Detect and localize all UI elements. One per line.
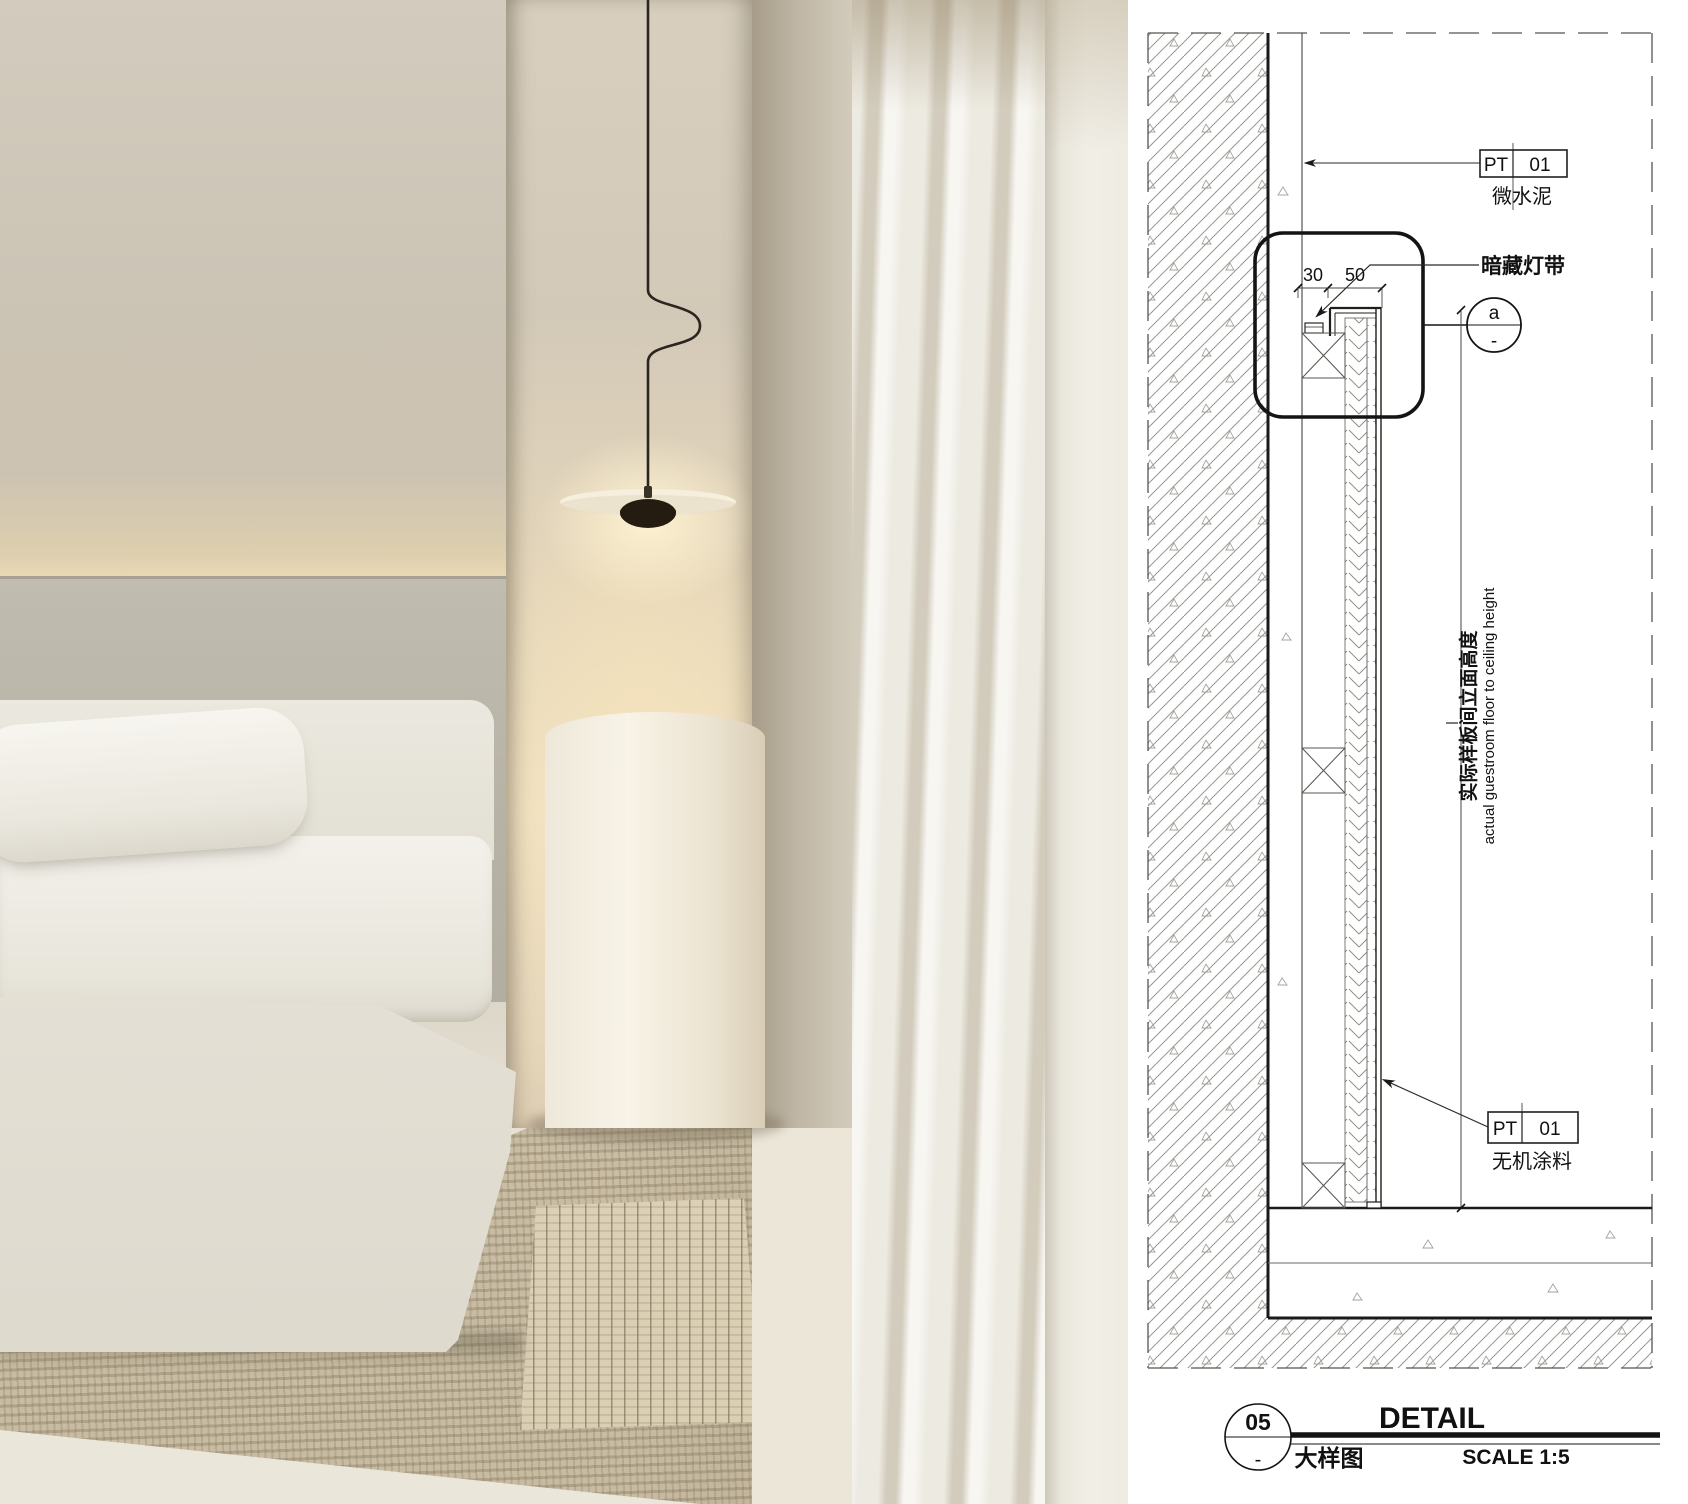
bed-pillow [0,705,310,866]
height-note-en: actual guestroom floor to ceiling height [1481,587,1498,845]
title-zh: 大样图 [1295,1445,1364,1471]
screenshot-root: 30 50 暗藏灯带 a - 实际样板间立面 [0,0,1688,1504]
marker-ref: - [1491,331,1497,352]
callout-pt01-top: PT 01 微水泥 [1306,143,1567,210]
title-block: 05 - DETAIL 大样图 SCALE 1:5 [1225,1402,1660,1471]
light-strip-label: 暗藏灯带 [1481,254,1565,278]
lamp-dome [620,499,676,527]
pt-top-label: 微水泥 [1492,185,1552,208]
blocking [1302,333,1345,1208]
title-en: DETAIL [1379,1402,1485,1435]
callout-light-strip: 暗藏灯带 [1317,254,1565,316]
detail-drawing-panel: 30 50 暗藏灯带 a - 实际样板间立面 [1128,0,1688,1504]
led-strip [1305,323,1323,333]
dimension-30-50: 30 50 [1294,265,1386,308]
pendant-lamp [560,0,740,560]
curtain-folds [852,0,1050,1504]
pt-top-right: 01 [1529,155,1550,176]
height-note-zh: 实际样板间立面高度 [1457,630,1480,802]
detail-drawing-svg: 30 50 暗藏灯带 a - 实际样板间立面 [1128,0,1688,1504]
marker-letter: a [1489,303,1500,324]
side-table-cylinder [545,712,765,1128]
detail-sheet-ref: - [1255,1449,1262,1471]
bed-mattress [0,836,492,1022]
pt-bottom-left: PT [1493,1119,1518,1140]
lamp-cable [648,0,700,490]
panel-face [1376,308,1381,1208]
wall-edge-right [1045,0,1128,1504]
cove-light-shadow-line [0,576,506,579]
callout-pt01-bottom: PT 01 无机涂料 [1384,1080,1578,1173]
bedroom-photo [0,0,1128,1504]
scale-label: SCALE 1:5 [1462,1446,1570,1469]
wall-shadow-gap [752,0,854,1128]
panel-assembly [1330,308,1381,1208]
lamp-stem [644,486,652,498]
detail-marker-a: a - [1423,298,1521,352]
pt-bottom-label: 无机涂料 [1492,1150,1572,1173]
pt-top-left: PT [1484,155,1509,176]
height-dimension: 实际样板间立面高度 actual guestroom floor to ceil… [1446,310,1498,1212]
dim-50: 50 [1345,265,1365,285]
dim-30: 30 [1303,265,1323,285]
pt-bottom-right: 01 [1539,1119,1560,1140]
detail-bubble [1255,233,1423,417]
detail-number: 05 [1245,1409,1271,1435]
wall-edge-right-shadow [1045,0,1128,150]
panel-bottom-cap [1367,1202,1381,1208]
niche-floor [752,1128,854,1504]
